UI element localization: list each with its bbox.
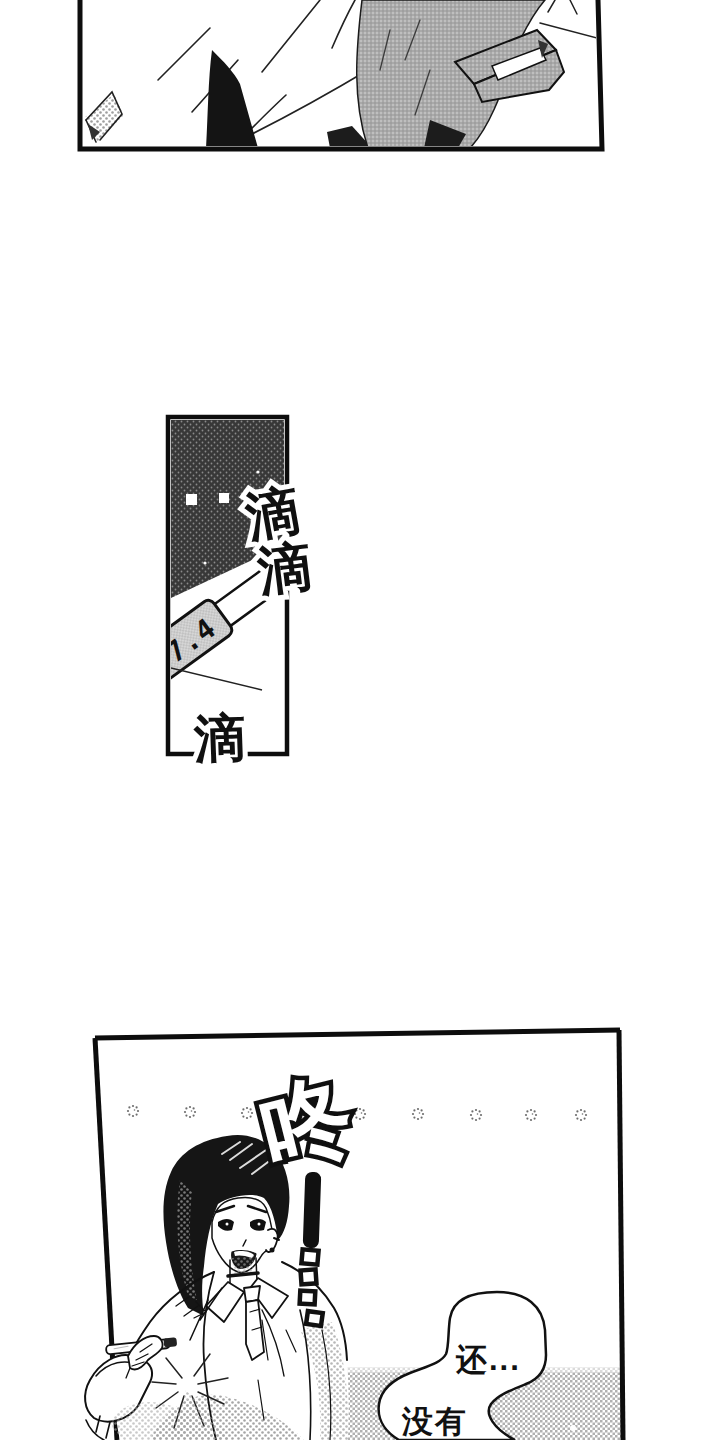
panel-middle-art: 37.4 — [0, 400, 720, 780]
panel-bottom — [0, 1020, 720, 1440]
panel-top — [0, 0, 720, 170]
speech-line-1: 还... — [456, 1344, 521, 1375]
sfx-drip-3: 滴滴 — [193, 711, 247, 765]
panel-bottom-art — [0, 1020, 720, 1440]
dot-sparkles — [127, 1105, 587, 1121]
panel-middle: 37.4 — [0, 400, 720, 780]
speech-line-2: 没有 — [402, 1406, 468, 1437]
sfx-drip-2: 滴滴 — [255, 538, 315, 598]
sfx-drip-3-text: 滴 — [193, 708, 247, 768]
earring — [270, 1248, 275, 1253]
sfx-drip-1: 滴滴 — [242, 482, 305, 545]
sfx-drip-2-text: 滴 — [255, 535, 316, 601]
panel-top-art — [0, 0, 720, 170]
manga-page: 37.4 — [0, 0, 720, 1440]
